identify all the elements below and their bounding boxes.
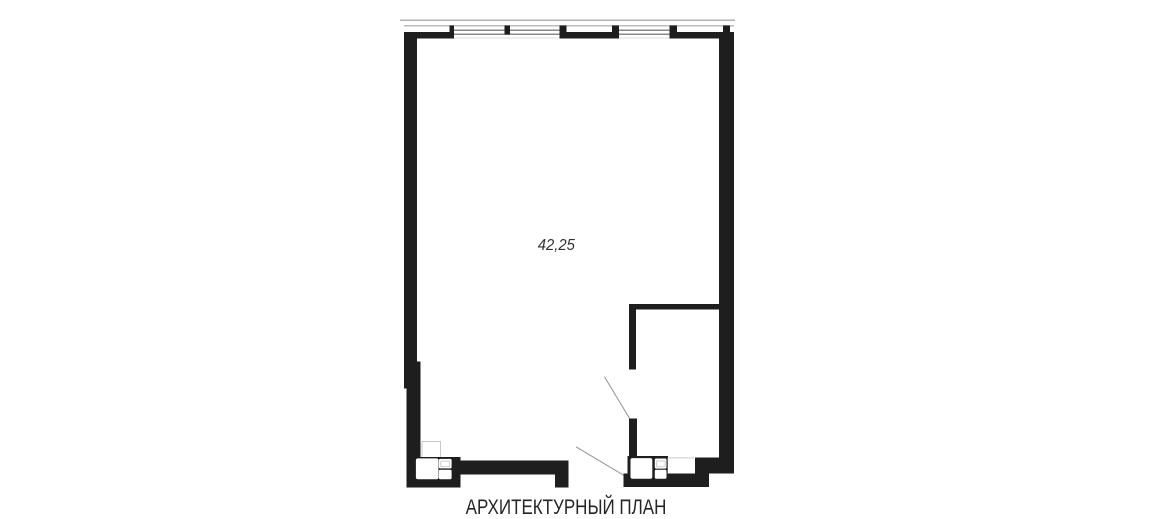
svg-text:АРХИТЕКТУРНЫЙ ПЛАН: АРХИТЕКТУРНЫЙ ПЛАН	[466, 495, 667, 519]
svg-text:42,25: 42,25	[538, 237, 576, 255]
